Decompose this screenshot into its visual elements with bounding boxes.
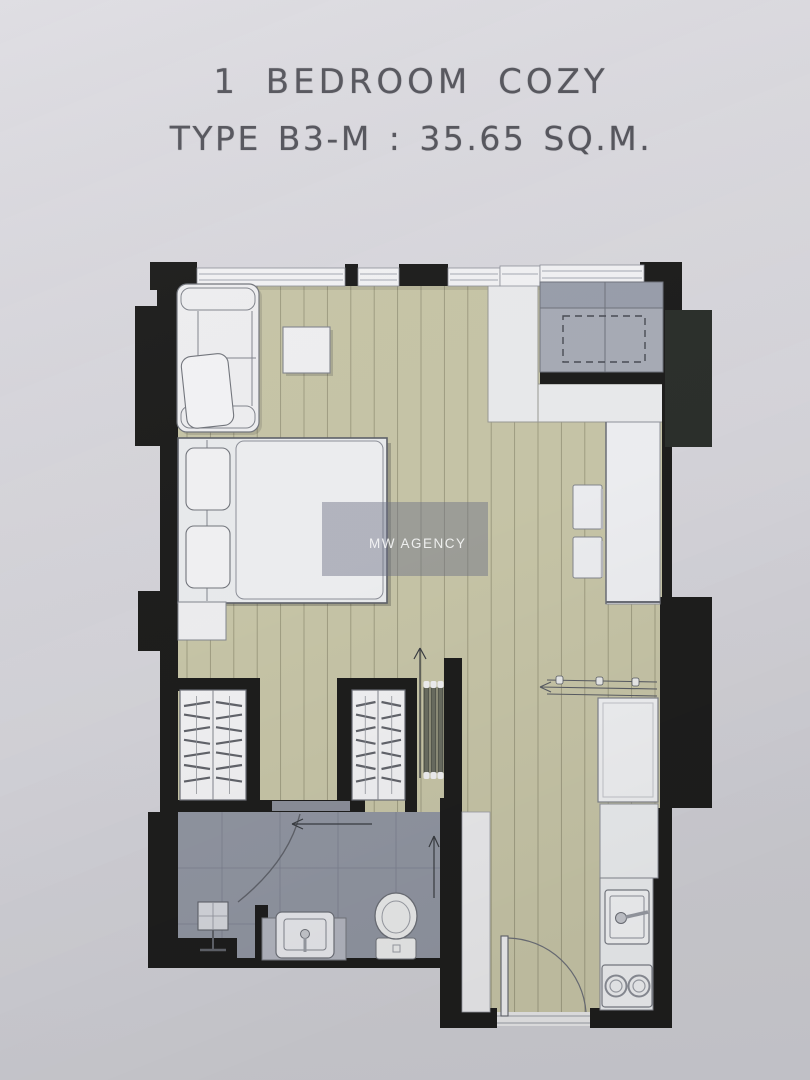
wall-left-pier-lower: [138, 591, 178, 651]
outside-structure-block: [665, 310, 712, 447]
door-threshold: [497, 1012, 590, 1026]
bathroom-sliding-door-panel: [272, 801, 350, 811]
stove-two-burner: [602, 965, 652, 1007]
pillow: [186, 526, 230, 588]
white-ledge: [538, 384, 663, 422]
wall-left-pier-upper: [135, 306, 178, 446]
window-3: [448, 268, 500, 286]
wall-wardrobe1-bar: [178, 678, 252, 691]
kitchen-sink: [605, 890, 649, 944]
window-4: [500, 266, 540, 286]
window-2: [358, 268, 399, 286]
toilet: [375, 893, 417, 959]
window-1: [197, 268, 345, 286]
floor-plan: MW AGENCY: [0, 0, 810, 1080]
refrigerator: [598, 698, 658, 802]
watermark-text: MW AGENCY: [369, 536, 467, 551]
sofa-pillow: [180, 353, 234, 430]
sofa: [177, 284, 262, 435]
nightstand: [178, 602, 226, 640]
wall-under-ac-unit: [540, 372, 663, 384]
pillow: [186, 448, 230, 510]
counter-desk: [606, 422, 660, 604]
stool: [573, 485, 602, 529]
door-leaf: [501, 936, 508, 1016]
side-table: [283, 327, 333, 376]
wall-bottom-right-of-door: [590, 1008, 672, 1028]
kitchen-cabinet: [600, 804, 658, 878]
white-column: [488, 284, 538, 422]
kitchen-counter: [600, 878, 653, 1010]
wall-window-mullion: [345, 264, 358, 286]
watermark: MW AGENCY: [322, 502, 488, 576]
shoe-cabinet: [462, 812, 490, 1012]
ac-unit-cabinet: [540, 282, 663, 372]
wall-hall-left: [440, 798, 462, 1012]
wall-bathroom-corner: [148, 938, 237, 968]
wardrobe-right: [352, 690, 405, 800]
vanity-sink: [262, 912, 346, 960]
brochure-page: 1 BEDROOM COZY TYPE B3-M : 35.65 SQ.M.: [0, 0, 810, 1080]
wall-bedroom-divider: [444, 658, 462, 812]
wardrobe-left: [180, 690, 246, 800]
wall-right-mass: [660, 597, 712, 808]
stool: [573, 537, 602, 578]
